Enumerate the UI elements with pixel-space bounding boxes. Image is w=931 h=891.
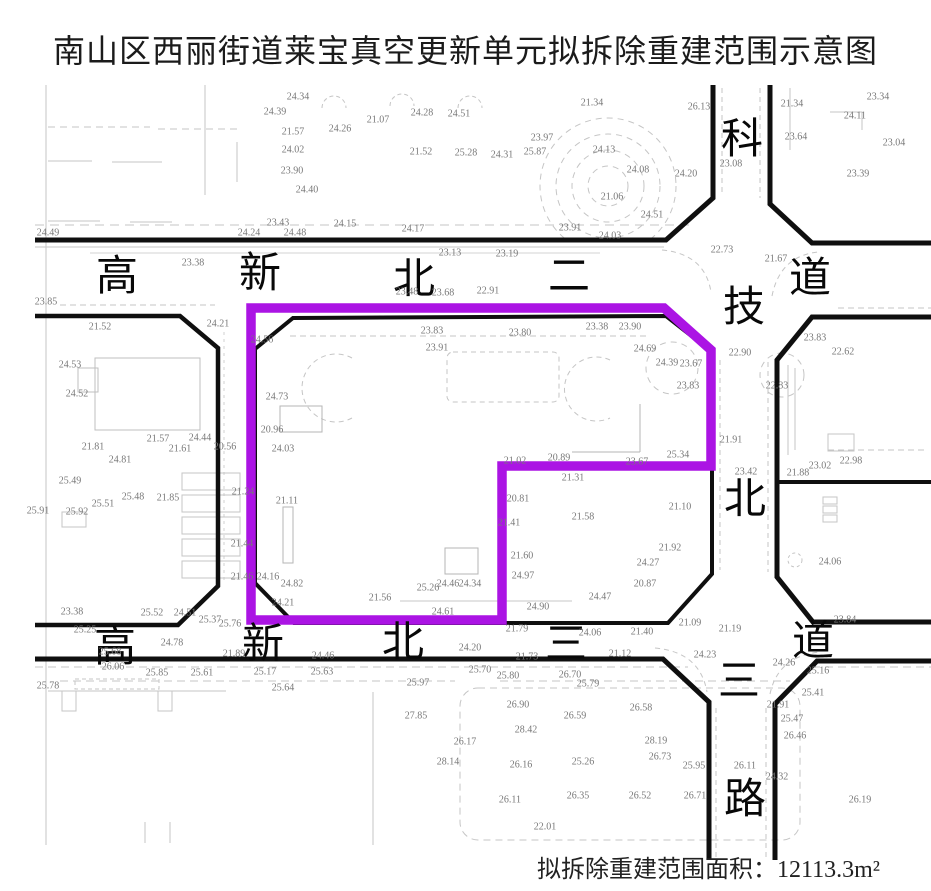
- elevation-label: 24.51: [448, 109, 471, 120]
- elevation-label: 21.31: [562, 473, 585, 484]
- elevation-label: 24.24: [238, 228, 261, 239]
- elevation-label: 21.41: [498, 518, 521, 529]
- elevation-label: 23.13: [439, 248, 462, 259]
- elevation-label: 24.20: [675, 169, 698, 180]
- elevation-label: 28.42: [515, 725, 538, 736]
- elevation-label: 23.90: [281, 166, 304, 177]
- elevation-label: 24.31: [491, 150, 514, 161]
- road-name-char: 技: [723, 285, 765, 331]
- elevation-label: 20.81: [507, 494, 530, 505]
- road-name-char: 道: [792, 619, 834, 665]
- elevation-label: 24.28: [411, 108, 434, 119]
- elevation-label: 26.59: [564, 711, 587, 722]
- elevation-label: 21.34: [581, 98, 604, 109]
- elevation-label: 24.53: [59, 360, 82, 371]
- elevation-label: 25.16: [807, 666, 830, 677]
- elevation-label: 24.44: [189, 433, 212, 444]
- elevation-label: 21.91: [720, 435, 743, 446]
- road-name-char: 路: [724, 777, 766, 823]
- elevation-label: 20.56: [214, 442, 237, 453]
- area-label: 拟拆除重建范围面积：: [537, 857, 777, 883]
- elevation-label: 21.60: [511, 551, 534, 562]
- elevation-label: 22.98: [840, 456, 863, 467]
- elevation-label: 23.38: [586, 322, 609, 333]
- elevation-label: 26.19: [849, 795, 872, 806]
- elevation-label: 24.27: [637, 558, 660, 569]
- elevation-label: 26.90: [507, 700, 530, 711]
- elevation-label: 25.52: [141, 608, 164, 619]
- elevation-label: 23.67: [680, 359, 703, 370]
- elevation-label: 26.35: [567, 791, 590, 802]
- elevation-label: 22.91: [477, 286, 500, 297]
- elevation-label: 21.09: [679, 618, 702, 629]
- elevation-label: 22.01: [534, 822, 557, 833]
- elevation-label: 22.83: [766, 381, 789, 392]
- road-name-char: 三: [718, 659, 760, 705]
- elevation-label: 26.13: [688, 102, 711, 113]
- elevation-label: 21.91: [767, 700, 790, 711]
- elevation-label: 25.41: [802, 688, 825, 699]
- elevation-label: 25.17: [254, 667, 277, 678]
- elevation-label: 23.97: [531, 133, 554, 144]
- elevation-label: 24.17: [402, 224, 425, 235]
- road-name-char: 二: [548, 254, 590, 300]
- elevation-label: 25.28: [455, 148, 478, 159]
- road-name-char: 北: [382, 620, 424, 666]
- elevation-label: 21.46: [231, 572, 254, 583]
- road-name-char: 高: [96, 254, 138, 300]
- elevation-label: 24.02: [282, 145, 305, 156]
- area-footer: 拟拆除重建范围面积：12113.3m²: [537, 849, 880, 884]
- elevation-label: 25.48: [122, 492, 145, 503]
- elevation-label: 25.79: [577, 679, 600, 690]
- elevation-label: 24.40: [296, 185, 319, 196]
- elevation-label: 25.25: [74, 625, 97, 636]
- elevation-label: 26.71: [684, 791, 707, 802]
- elevation-label: 21.85: [157, 493, 180, 504]
- elevation-label: 23.42: [735, 467, 758, 478]
- road-name-char: 北: [724, 477, 766, 523]
- elevation-label: 23.83: [677, 381, 700, 392]
- elevation-label: 24.81: [109, 455, 132, 466]
- elevation-label: 24.20: [459, 643, 482, 654]
- area-value: 12113.3m²: [777, 857, 880, 883]
- elevation-label: 24.34: [287, 92, 310, 103]
- elevation-label: 21.24: [232, 487, 255, 498]
- elevation-label: 25.51: [92, 499, 115, 510]
- elevation-label: 20.89: [548, 453, 571, 464]
- elevation-label: 24.39: [656, 358, 679, 369]
- elevation-label: 25.34: [667, 450, 690, 461]
- elevation-label: 24.52: [66, 389, 89, 400]
- elevation-label: 26.06: [102, 662, 125, 673]
- elevation-label: 25.80: [497, 671, 520, 682]
- elevation-label: 24.26: [329, 124, 352, 135]
- elevation-label: 23.85: [35, 297, 58, 308]
- elevation-label: 25.49: [59, 476, 82, 487]
- elevation-label: 25.91: [27, 506, 50, 517]
- elevation-label: 24.34: [459, 579, 482, 590]
- elevation-label: 23.80: [509, 328, 532, 339]
- elevation-label: 23.64: [785, 132, 808, 143]
- elevation-label: 26.16: [510, 760, 533, 771]
- elevation-label: 21.06: [601, 192, 624, 203]
- elevation-label: 24.69: [634, 344, 657, 355]
- elevation-label: 24.47: [589, 592, 612, 603]
- elevation-label: 23.48: [396, 287, 419, 298]
- elevation-label: 21.56: [369, 593, 392, 604]
- elevation-label: 23.34: [867, 92, 890, 103]
- elevation-label: 25.78: [37, 681, 60, 692]
- elevation-label: 24.39: [264, 107, 287, 118]
- elevation-label: 26.11: [499, 795, 521, 806]
- elevation-label: 24.78: [161, 638, 184, 649]
- elevation-label: 21.57: [147, 434, 170, 445]
- elevation-label: 28.19: [645, 736, 668, 747]
- elevation-label: 24.06: [579, 628, 602, 639]
- elevation-label: 28.14: [437, 757, 460, 768]
- elevation-label: 25.68: [99, 647, 122, 658]
- map-canvas: 高新北二道高新北三道科技北三路 24.4924.2424.4824.1724.1…: [0, 0, 931, 891]
- elevation-label: 25.85: [146, 668, 169, 679]
- elevation-label: 26.11: [734, 761, 756, 772]
- elevation-label: 24.03: [599, 231, 622, 242]
- elevation-label: 23.68: [432, 288, 455, 299]
- elevation-label: 23.91: [426, 343, 449, 354]
- planning-map-page: 南山区西丽街道莱宝真空更新单元拟拆除重建范围示意图: [0, 0, 931, 891]
- elevation-label: 21.81: [82, 442, 105, 453]
- elevation-label: 23.08: [720, 159, 743, 170]
- elevation-label: 25.26: [572, 757, 595, 768]
- elevation-label: 24.48: [284, 228, 307, 239]
- elevation-label: 24.13: [593, 145, 616, 156]
- elevation-label: 23.39: [847, 169, 870, 180]
- elevation-label: 21.52: [410, 147, 433, 158]
- elevation-label: 21.11: [276, 496, 298, 507]
- road-name-char: 科: [721, 117, 763, 163]
- elevation-label: 24.23: [694, 650, 717, 661]
- elevation-label: 26.17: [454, 737, 477, 748]
- elevation-label: 25.92: [66, 507, 89, 518]
- elevation-label: 21.19: [719, 624, 742, 635]
- elevation-label: 24.51: [174, 608, 197, 619]
- elevation-label: 23.38: [182, 258, 205, 269]
- elevation-label: 21.02: [504, 456, 527, 467]
- elevation-label: 20.87: [634, 579, 657, 590]
- elevation-label: 21.73: [516, 652, 539, 663]
- road-name-char: 道: [789, 256, 831, 302]
- elevation-label: 23.90: [619, 322, 642, 333]
- elevation-label: 24.08: [627, 165, 650, 176]
- elevation-label: 21.40: [631, 627, 654, 638]
- elevation-label: 22.73: [711, 245, 734, 256]
- elevation-label: 20.96: [261, 425, 284, 436]
- elevation-label: 24.97: [512, 571, 535, 582]
- elevation-label: 23.83: [804, 333, 827, 344]
- elevation-label: 23.43: [267, 218, 290, 229]
- elevation-label: 21.34: [781, 99, 804, 110]
- elevation-label: 24.11: [844, 111, 866, 122]
- elevation-label: 23.91: [559, 223, 582, 234]
- elevation-label: 25.64: [272, 683, 295, 694]
- elevation-label: 23.67: [626, 457, 649, 468]
- elevation-label: 21.52: [89, 322, 112, 333]
- elevation-label: 26.52: [629, 791, 652, 802]
- elevation-label: 25.95: [683, 761, 706, 772]
- elevation-label: 25.47: [781, 714, 804, 725]
- elevation-label: 24.90: [527, 602, 550, 613]
- elevation-label: 22.62: [832, 347, 855, 358]
- elevation-label: 24.46: [437, 579, 460, 590]
- elevation-label: 24.21: [272, 598, 295, 609]
- elevation-label: 21.61: [169, 444, 192, 455]
- elevation-label: 23.19: [496, 249, 519, 260]
- elevation-label: 23.02: [809, 461, 832, 472]
- elevation-label: 25.70: [469, 665, 492, 676]
- elevation-label: 23.83: [421, 326, 444, 337]
- elevation-label: 25.87: [524, 147, 547, 158]
- road-names: 高新北二道高新北三道科技北三路: [94, 117, 834, 823]
- elevation-label: 21.79: [506, 624, 529, 635]
- elevation-label: 24.26: [773, 658, 796, 669]
- elevation-label: 21.12: [609, 649, 632, 660]
- elevation-label: 27.85: [405, 711, 428, 722]
- elevation-label: 24.73: [266, 392, 289, 403]
- elevation-label: 23.84: [834, 615, 857, 626]
- elevation-label: 25.97: [407, 678, 430, 689]
- elevation-label: 21.07: [367, 115, 390, 126]
- elevation-label: 23.38: [61, 607, 84, 618]
- elevation-label: 24.46: [312, 651, 335, 662]
- elevation-label: 21.88: [787, 468, 810, 479]
- elevation-label: 24.51: [641, 210, 664, 221]
- elevation-label: 26.58: [630, 703, 653, 714]
- road-name-char: 新: [239, 251, 281, 297]
- elevation-label: 25.76: [219, 619, 242, 630]
- elevation-label: 24.16: [257, 572, 280, 583]
- elevation-label: 21.67: [765, 254, 788, 265]
- elevation-label: 26.73: [649, 752, 672, 763]
- elevation-label: 21.89: [223, 649, 246, 660]
- elevation-label: 23.04: [883, 138, 906, 149]
- elevation-label: 24.03: [272, 444, 295, 455]
- elevation-label: 25.63: [311, 667, 334, 678]
- elevation-label: 21.44: [231, 539, 254, 550]
- road-name-char: 新: [242, 622, 284, 668]
- elevation-label: 24.82: [281, 579, 304, 590]
- elevation-label: 25.61: [191, 668, 214, 679]
- elevation-label: 24.61: [432, 607, 455, 618]
- elevation-label: 21.58: [572, 512, 595, 523]
- elevation-label: 21.92: [659, 543, 682, 554]
- elevation-label: 24.06: [819, 557, 842, 568]
- elevation-label: 24.15: [334, 219, 357, 230]
- elevation-label: 21.57: [282, 127, 305, 138]
- elevation-label: 22.90: [729, 348, 752, 359]
- elevation-label: 24.49: [37, 228, 60, 239]
- elevation-label: 24.56: [251, 335, 274, 346]
- elevation-label: 24.21: [207, 319, 230, 330]
- elevation-label: 26.46: [784, 731, 807, 742]
- elevation-label: 21.10: [669, 502, 692, 513]
- elevation-label: 24.32: [766, 772, 789, 783]
